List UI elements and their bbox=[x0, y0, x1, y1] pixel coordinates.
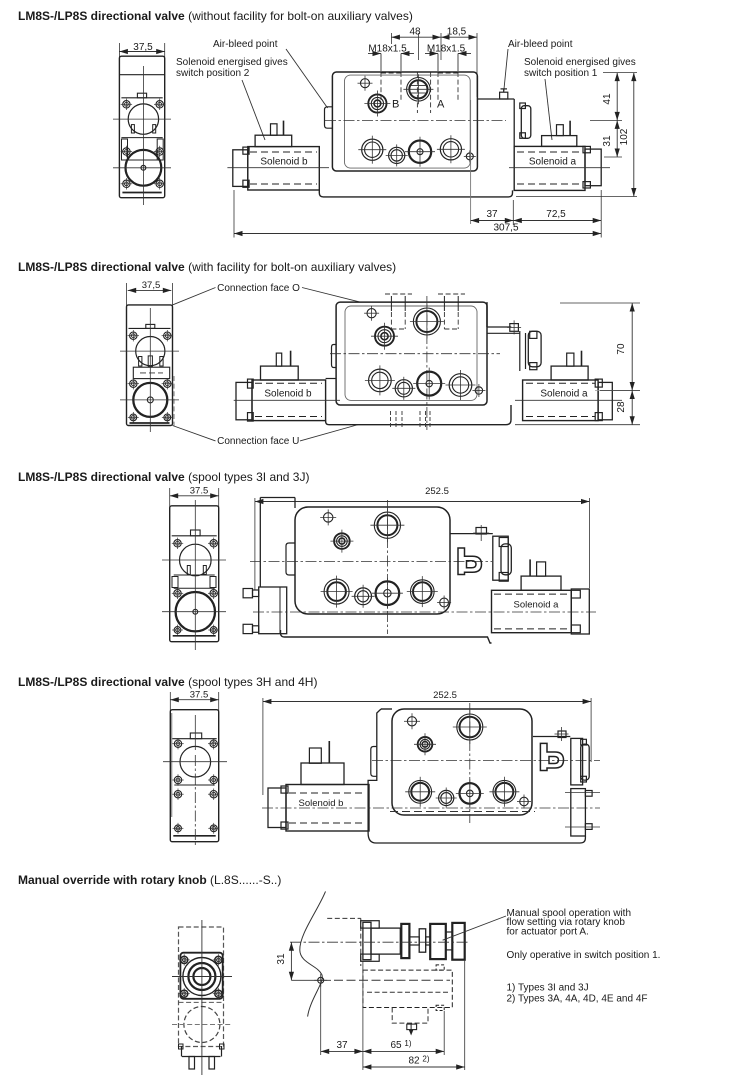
svg-text:252.5: 252.5 bbox=[425, 486, 449, 497]
svg-text:37: 37 bbox=[486, 209, 498, 220]
svg-text:Solenoid b: Solenoid b bbox=[299, 798, 344, 809]
svg-text:48: 48 bbox=[409, 27, 421, 38]
svg-text:1) Types 3I and 3J: 1) Types 3I and 3J bbox=[507, 983, 589, 994]
svg-text:72,5: 72,5 bbox=[546, 209, 566, 220]
svg-text:70: 70 bbox=[616, 343, 627, 355]
svg-text:Only operative in switch posit: Only operative in switch position 1. bbox=[507, 950, 661, 961]
svg-text:37.5: 37.5 bbox=[190, 690, 209, 701]
svg-text:LM8S-/LP8S directional valve (: LM8S-/LP8S directional valve (without fa… bbox=[18, 9, 413, 23]
svg-text:2) Types 3A, 4A, 4D, 4E and 4F: 2) Types 3A, 4A, 4D, 4E and 4F bbox=[507, 994, 648, 1005]
svg-text:LM8S-/LP8S directional valve (: LM8S-/LP8S directional valve (with facil… bbox=[18, 260, 396, 274]
svg-text:Solenoid a: Solenoid a bbox=[540, 389, 588, 400]
svg-text:switch position 2: switch position 2 bbox=[176, 68, 250, 79]
svg-text:B: B bbox=[392, 99, 399, 111]
svg-text:Solenoid b: Solenoid b bbox=[264, 389, 312, 400]
svg-text:Connection face O: Connection face O bbox=[217, 283, 300, 294]
svg-text:Solenoid b: Solenoid b bbox=[260, 156, 308, 167]
svg-text:252.5: 252.5 bbox=[433, 690, 457, 701]
svg-text:37.5: 37.5 bbox=[190, 486, 209, 497]
svg-text:switch position 1: switch position 1 bbox=[524, 68, 598, 79]
svg-text:Solenoid a: Solenoid a bbox=[529, 156, 577, 167]
svg-text:Solenoid a: Solenoid a bbox=[514, 600, 560, 611]
svg-text:LM8S-/LP8S directional valve (: LM8S-/LP8S directional valve (spool type… bbox=[18, 675, 317, 689]
svg-text:for actuator port A.: for actuator port A. bbox=[507, 926, 589, 937]
svg-text:31: 31 bbox=[276, 953, 287, 965]
svg-text:31: 31 bbox=[602, 135, 613, 147]
svg-text:A: A bbox=[437, 99, 445, 111]
svg-text:LM8S-/LP8S directional valve (: LM8S-/LP8S directional valve (spool type… bbox=[18, 470, 309, 484]
svg-text:37,5: 37,5 bbox=[133, 42, 153, 53]
svg-text:Solenoid energised gives: Solenoid energised gives bbox=[524, 57, 636, 68]
svg-text:307,5: 307,5 bbox=[493, 223, 518, 234]
svg-text:18,5: 18,5 bbox=[447, 27, 467, 38]
svg-text:28: 28 bbox=[616, 401, 627, 413]
svg-text:Connection face U: Connection face U bbox=[217, 436, 299, 447]
svg-text:41: 41 bbox=[602, 93, 613, 105]
svg-text:37,5: 37,5 bbox=[142, 280, 161, 291]
svg-text:Solenoid energised gives: Solenoid energised gives bbox=[176, 57, 288, 68]
svg-text:37: 37 bbox=[336, 1040, 348, 1051]
svg-text:Air-bleed point: Air-bleed point bbox=[508, 39, 573, 50]
svg-text:102: 102 bbox=[619, 128, 630, 145]
svg-text:Air-bleed point: Air-bleed point bbox=[213, 39, 278, 50]
svg-text:Manual override with rotary kn: Manual override with rotary knob (L.8S..… bbox=[18, 873, 281, 887]
